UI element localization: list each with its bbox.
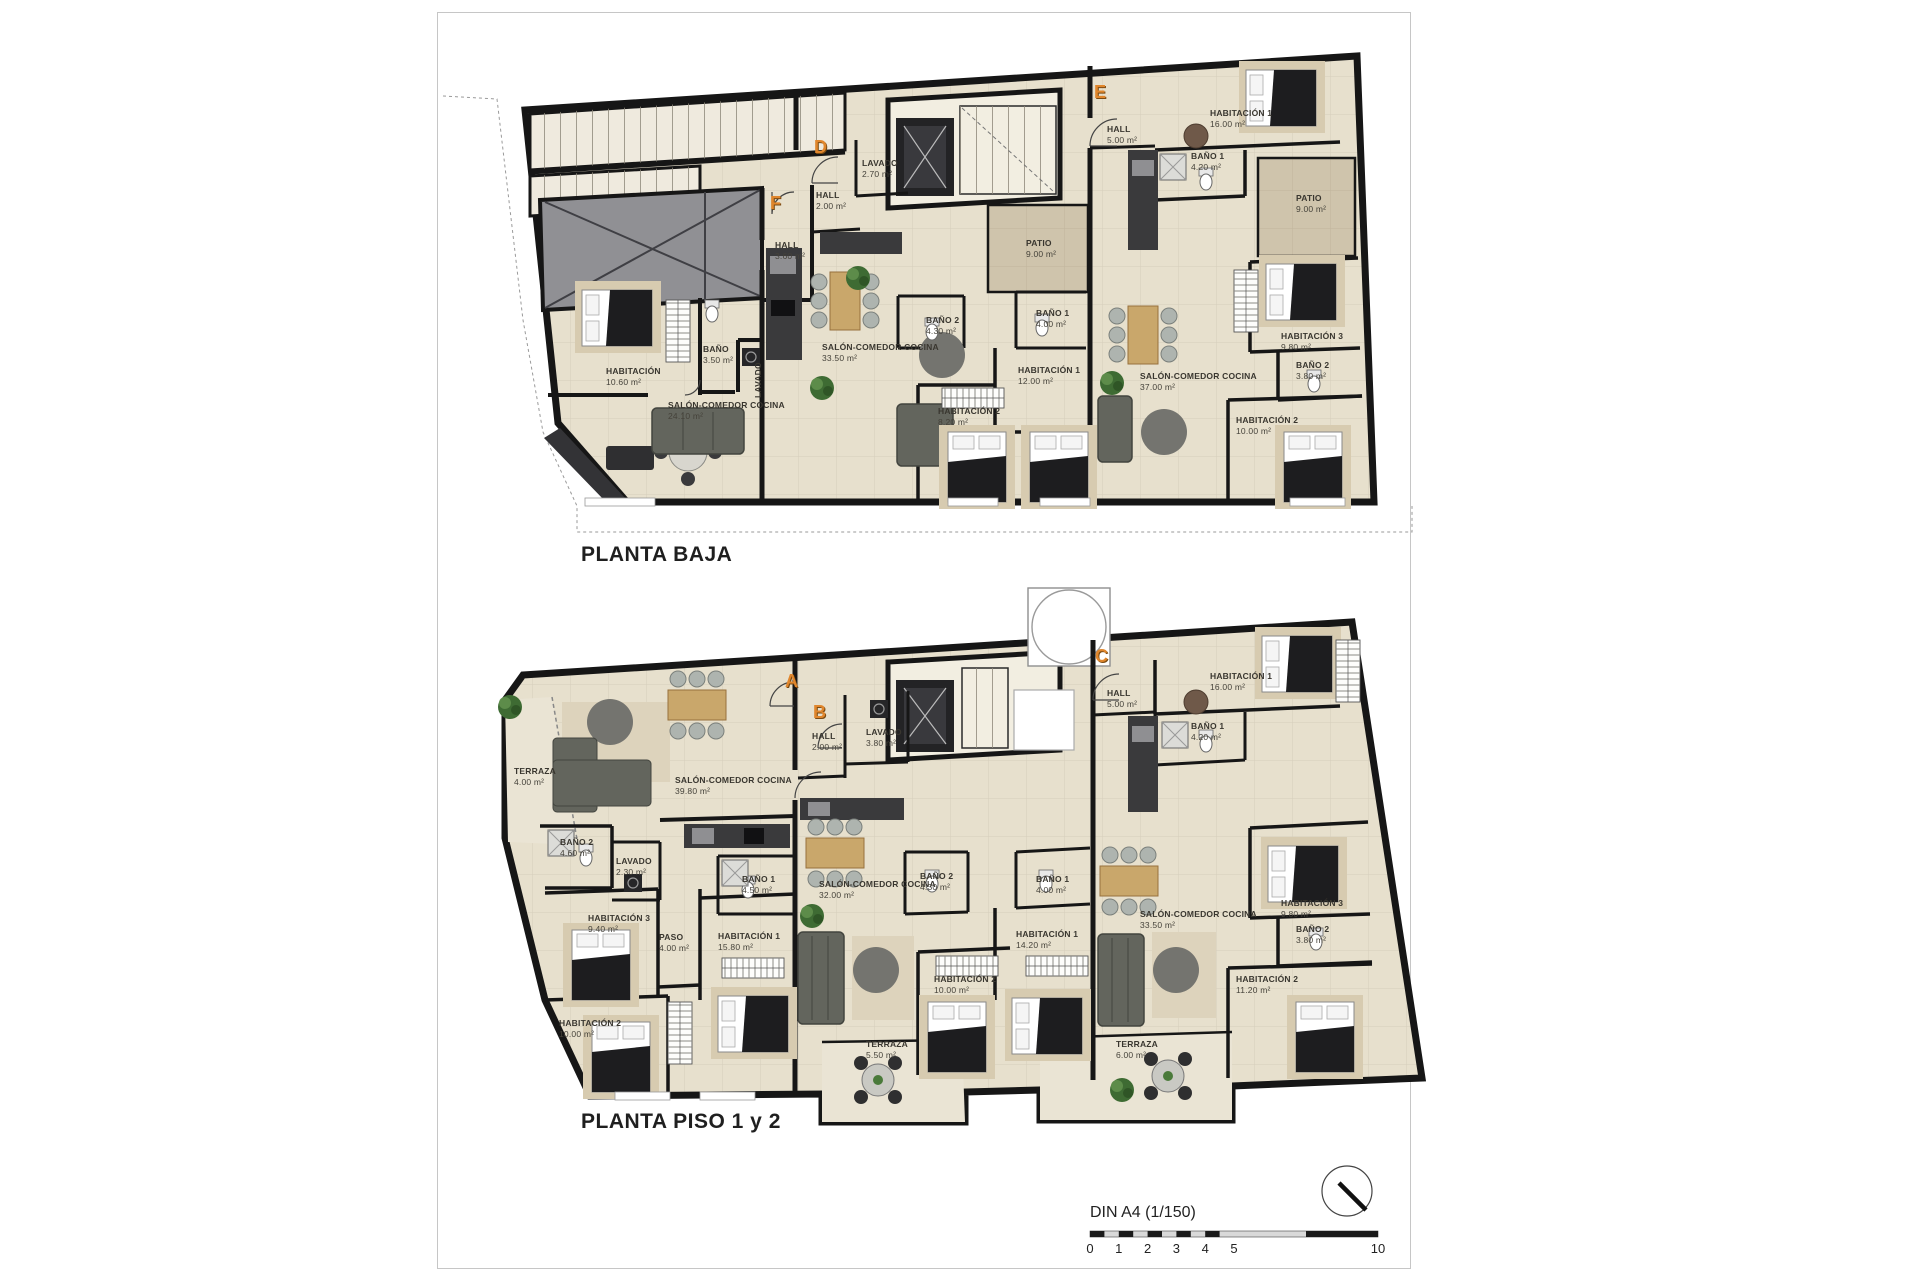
- room-label: HABITACIÓN 210.00 m²: [934, 974, 996, 995]
- room-label: HABITACIÓN 112.00 m²: [1018, 365, 1080, 386]
- room-label: TERRAZA6.00 m²: [1116, 1039, 1158, 1060]
- room-label: LAVADO2.70 m²: [862, 158, 898, 179]
- scale-bar-title: DIN A4 (1/150): [1090, 1204, 1196, 1222]
- room-label: TERRAZA5.50 m²: [866, 1039, 908, 1060]
- room-label: LAVADO: [753, 362, 764, 398]
- room-label: HABITACIÓN 39.40 m²: [588, 913, 650, 934]
- room-label: BAÑO 14.50 m²: [742, 874, 775, 895]
- room-label: BAÑO 14.20 m²: [1191, 721, 1224, 742]
- room-label: HABITACIÓN 28.20 m²: [938, 406, 1000, 427]
- unit-letter-F: F: [770, 193, 781, 214]
- scale-tick-1: 1: [1115, 1241, 1122, 1256]
- scale-tick-3: 3: [1173, 1241, 1180, 1256]
- room-label: HALL5.00 m²: [1107, 124, 1137, 145]
- room-label: HABITACIÓN 116.00 m²: [1210, 671, 1272, 692]
- room-label: HABITACIÓN 211.20 m²: [1236, 974, 1298, 995]
- room-label: BAÑO 23.80 m²: [1296, 924, 1329, 945]
- unit-letter-D: D: [814, 137, 827, 158]
- plan-title-planta-piso: PLANTA PISO 1 y 2: [581, 1110, 781, 1134]
- unit-letter-A: A: [785, 671, 798, 692]
- room-label: BAÑO 24.60 m²: [560, 837, 593, 858]
- room-label: LAVADO3.80 m²: [866, 727, 902, 748]
- plan-title-planta-baja: PLANTA BAJA: [581, 543, 732, 567]
- room-label: BAÑO 24.30 m²: [926, 315, 959, 336]
- room-label: HALL2.00 m²: [816, 190, 846, 211]
- room-label: PATIO9.00 m²: [1296, 193, 1326, 214]
- scale-tick-0: 0: [1086, 1241, 1093, 1256]
- room-label: HALL5.00 m²: [1107, 688, 1137, 709]
- room-label: HABITACIÓN 115.80 m²: [718, 931, 780, 952]
- unit-letter-B: B: [813, 702, 826, 723]
- room-label: PATIO9.00 m²: [1026, 238, 1056, 259]
- unit-letter-E: E: [1094, 82, 1106, 103]
- room-label: HABITACIÓN 39.80 m²: [1281, 331, 1343, 352]
- room-label: BAÑO3.50 m²: [703, 344, 733, 365]
- room-label: BAÑO 14.00 m²: [1036, 308, 1069, 329]
- room-label: BAÑO 23.80 m²: [1296, 360, 1329, 381]
- scale-tick-2: 2: [1144, 1241, 1151, 1256]
- scale-tick-5: 5: [1230, 1241, 1237, 1256]
- room-label: PASO4.00 m²: [659, 932, 689, 953]
- room-label: HABITACIÓN 39.80 m²: [1281, 898, 1343, 919]
- room-label: HABITACIÓN 210.00 m²: [559, 1018, 621, 1039]
- room-label: SALÓN-COMEDOR COCINA33.50 m²: [822, 342, 939, 363]
- scale-tick-4: 4: [1202, 1241, 1209, 1256]
- scale-tick-10: 10: [1371, 1241, 1385, 1256]
- unit-letter-C: C: [1095, 646, 1108, 667]
- room-label: SALÓN-COMEDOR COCINA39.80 m²: [675, 775, 792, 796]
- room-label: HALL3.60 m²: [775, 240, 805, 261]
- room-label: BAÑO 14.00 m²: [1036, 874, 1069, 895]
- room-label: BAÑO 14.20 m²: [1191, 151, 1224, 172]
- room-label: SALÓN-COMEDOR COCINA24.10 m²: [668, 400, 785, 421]
- floor-plan-sheet: PLANTA BAJA PLANTA PISO 1 y 2 DIN A4 (1/…: [0, 0, 1920, 1280]
- room-label: SALÓN-COMEDOR COCINA33.50 m²: [1140, 909, 1257, 930]
- room-label: HABITACIÓN 210.00 m²: [1236, 415, 1298, 436]
- room-label: HABITACIÓN10.60 m²: [606, 366, 661, 387]
- room-label: SALÓN-COMEDOR COCINA32.00 m²: [819, 879, 936, 900]
- room-label: HABITACIÓN 116.00 m²: [1210, 108, 1272, 129]
- room-label: BAÑO 24.30 m²: [920, 871, 953, 892]
- room-label: HALL2.00 m²: [812, 731, 842, 752]
- room-label: HABITACIÓN 114.20 m²: [1016, 929, 1078, 950]
- room-label: TERRAZA4.00 m²: [514, 766, 556, 787]
- room-label: SALÓN-COMEDOR COCINA37.00 m²: [1140, 371, 1257, 392]
- room-label: LAVADO2.30 m²: [616, 856, 652, 877]
- label-layer: PLANTA BAJA PLANTA PISO 1 y 2 DIN A4 (1/…: [0, 0, 1920, 1280]
